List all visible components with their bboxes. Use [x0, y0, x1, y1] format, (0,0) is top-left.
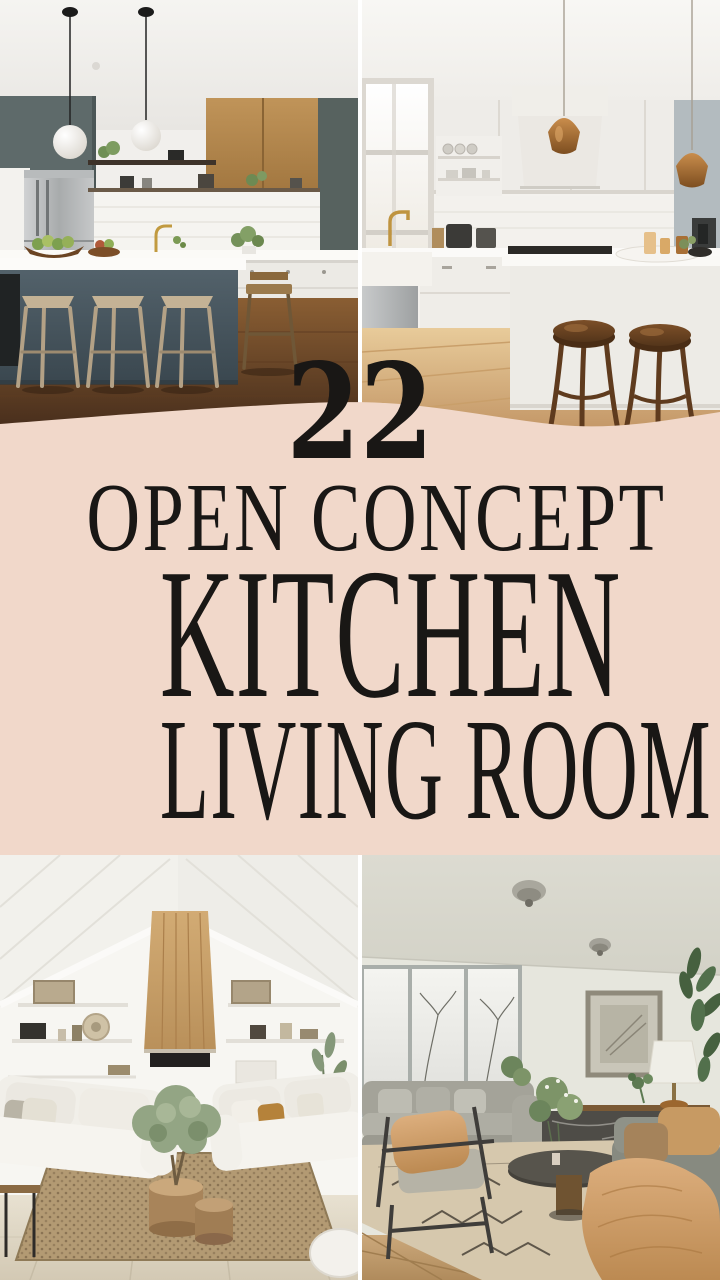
photo-living-room-cozy: [362, 855, 720, 1280]
pinterest-pin-poster: 22 OPEN CONCEPT KITCHEN LIVING ROOM: [0, 0, 720, 1280]
vaulted-living-room-illustration: [0, 855, 358, 1280]
sofa-right: [205, 1070, 358, 1172]
cooktop: [508, 246, 612, 254]
pouf: [310, 1229, 358, 1277]
photo-living-room-vaulted: [0, 855, 358, 1280]
black-chair: [0, 274, 20, 366]
window: [362, 78, 434, 266]
open-shelves: [436, 136, 502, 196]
wall-art: [588, 993, 660, 1075]
fireplace-chimney: [144, 911, 216, 1067]
tile-backsplash: [94, 192, 320, 254]
cozy-living-room-illustration: [362, 855, 720, 1280]
ceiling: [362, 855, 720, 975]
recessed-light: [92, 62, 100, 70]
badge-count: 22: [72, 347, 648, 479]
headline-living-room: LIVING ROOM: [160, 698, 560, 843]
